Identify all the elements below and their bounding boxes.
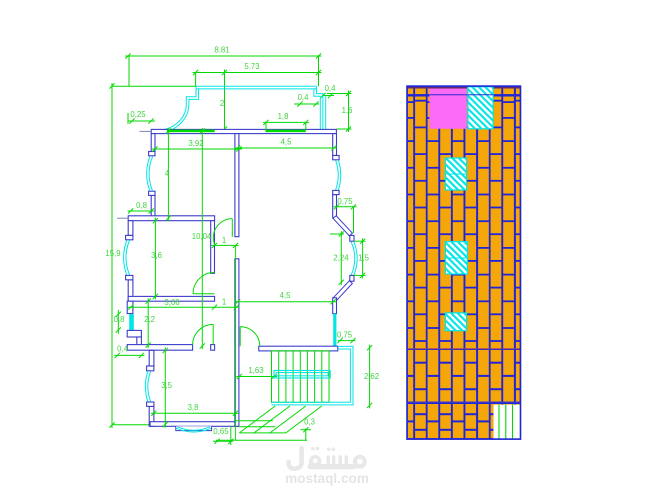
- svg-text:4,5: 4,5: [281, 138, 293, 147]
- svg-text:3,66: 3,66: [164, 298, 179, 307]
- svg-text:4,5: 4,5: [280, 291, 292, 300]
- svg-text:3,8: 3,8: [188, 403, 199, 412]
- svg-text:2,2: 2,2: [144, 315, 155, 324]
- svg-text:1,8: 1,8: [278, 112, 289, 121]
- svg-text:4: 4: [165, 169, 170, 178]
- svg-text:1,6: 1,6: [342, 106, 353, 115]
- svg-text:0,75: 0,75: [337, 197, 353, 206]
- svg-text:1: 1: [222, 236, 226, 245]
- svg-text:0,4: 0,4: [325, 84, 337, 93]
- svg-text:0,75: 0,75: [337, 331, 353, 340]
- svg-text:2: 2: [220, 99, 224, 108]
- svg-text:5.73: 5.73: [244, 62, 259, 71]
- svg-text:1,63: 1,63: [248, 366, 263, 375]
- svg-text:0,65: 0,65: [213, 427, 229, 436]
- svg-text:3,92: 3,92: [188, 139, 203, 148]
- svg-text:0,4: 0,4: [298, 93, 310, 102]
- svg-text:0,25: 0,25: [130, 110, 146, 119]
- svg-text:1: 1: [222, 298, 226, 307]
- svg-text:15,9: 15,9: [105, 249, 120, 258]
- svg-text:0,8: 0,8: [136, 201, 147, 210]
- svg-text:0,4: 0,4: [117, 345, 129, 354]
- svg-text:2,24: 2,24: [333, 254, 349, 263]
- svg-text:mostaql.com: mostaql.com: [285, 471, 369, 486]
- svg-text:10,04: 10,04: [192, 232, 212, 241]
- svg-text:8.81: 8.81: [214, 46, 229, 55]
- svg-text:1,5: 1,5: [358, 254, 370, 263]
- svg-text:3,5: 3,5: [161, 381, 173, 390]
- svg-text:3,6: 3,6: [151, 251, 162, 260]
- svg-text:0,8: 0,8: [114, 315, 125, 324]
- svg-text:2,62: 2,62: [364, 372, 379, 381]
- svg-text:0,3: 0,3: [304, 418, 315, 427]
